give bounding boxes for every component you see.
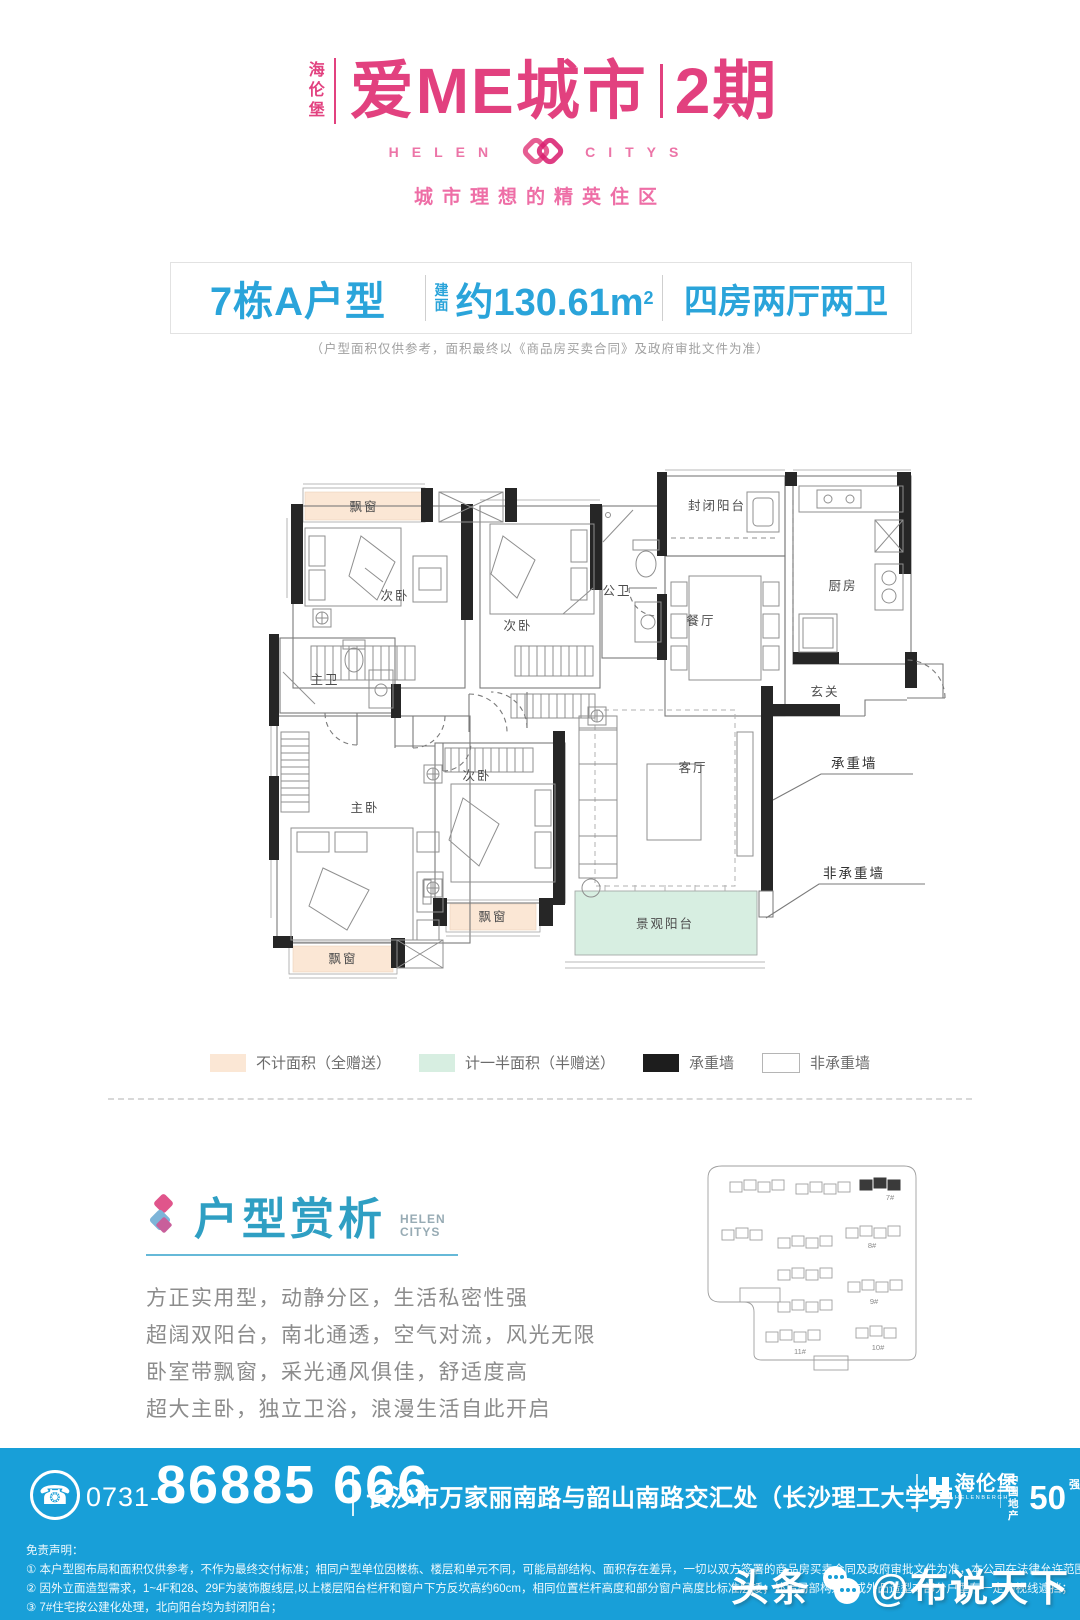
- footer-divider: [1000, 1478, 1001, 1508]
- legend-item-gift-area: 不计面积（全赠送）: [210, 1052, 391, 1073]
- site-label-9: 9#: [870, 1297, 879, 1306]
- label-bay-top: 飘窗: [349, 500, 378, 514]
- label-living: 客厅: [678, 760, 707, 775]
- rank-cn-1: 中国: [1008, 1474, 1026, 1498]
- label-bedroom2: 次卧: [380, 589, 409, 603]
- legend-label: 承重墙: [689, 1052, 734, 1073]
- address: 长沙市万家丽南路与韶山南路交汇处（长沙理工大学旁）: [366, 1478, 979, 1513]
- analysis-line: 卧室带飘窗，采光通风俱佳，舒适度高: [146, 1354, 706, 1391]
- legend-swatch-green: [419, 1054, 455, 1072]
- building-7-highlight: [860, 1178, 900, 1190]
- latin-row: HELEN CITYS: [0, 134, 1080, 170]
- phone-icon: ☎: [30, 1470, 80, 1520]
- legend-label: 非承重墙: [810, 1052, 870, 1073]
- watermark-bubbles-icon: [819, 1565, 863, 1605]
- site-boundary: [708, 1166, 916, 1360]
- analysis-body: 方正实用型，动静分区，生活私密性强 超阔双阳台，南北通透，空气对流，风光无限 卧…: [146, 1280, 706, 1428]
- latin-left: HELEN: [389, 144, 501, 160]
- analysis-section: 户型赏析 HELEN CITYS 方正实用型，动静分区，生活私密性强 超阔双阳台…: [146, 1192, 706, 1428]
- label-master-bedroom: 主卧: [350, 801, 379, 815]
- phase-divider-rule: [660, 64, 663, 118]
- living-furniture: [579, 710, 753, 897]
- phone-area-code: 0731-: [86, 1482, 160, 1513]
- flyer-page: 海伦堡 爱ME城市 2期 HELEN CITYS 城市理想的精英住区 7栋A户型…: [0, 0, 1080, 1620]
- legend-item-load-wall: 承重墙: [643, 1052, 734, 1073]
- area-prefix: 建面: [434, 283, 451, 313]
- floor-plan: 承重墙 非承重墙 飘窗 次卧 次卧 公卫 封闭阳台 餐厅 厨房 玄关 主卫 主卧…: [265, 448, 955, 1013]
- brand-vertical-label: 海伦堡: [302, 58, 336, 124]
- master-bedroom-furniture: [281, 732, 443, 940]
- area-note: （户型面积仅供参考，面积最终以《商品房买卖合同》及政府审批文件为准）: [0, 338, 1080, 357]
- project-phase: 2期: [675, 56, 779, 126]
- dining-furniture: [671, 576, 779, 680]
- site-label-10: 10#: [872, 1343, 885, 1352]
- footer-bar: ☎ 0731- 86885 666 长沙市万家丽南路与韶山南路交汇处（长沙理工大…: [0, 1448, 1080, 1620]
- legend-item-non-load-wall: 非承重墙: [762, 1052, 870, 1073]
- info-bar: 7栋A户型 建面 约130.61m 2 四房两厅两卫: [170, 262, 912, 334]
- brand-h-icon: [928, 1477, 950, 1499]
- footer-divider: [352, 1472, 354, 1516]
- bedroom2-furniture: [305, 528, 447, 680]
- header: 海伦堡 爱ME城市 2期 HELEN CITYS 城市理想的精英住区: [0, 56, 1080, 209]
- watermark-part2: @布说天下: [871, 1557, 1070, 1612]
- analysis-latin-2: CITYS: [400, 1226, 446, 1239]
- legend-label: 计一半面积（半赠送）: [465, 1052, 615, 1073]
- analysis-header: 户型赏析 HELEN CITYS: [146, 1192, 458, 1256]
- room-count: 四房两厅两卫: [663, 263, 909, 333]
- analysis-line: 超阔双阳台，南北通透，空气对流，风光无限: [146, 1317, 706, 1354]
- kitchen-fixtures: [799, 486, 903, 652]
- analysis-line: 超大主卧，独立卫浴，浪漫生活自此开启: [146, 1391, 706, 1428]
- label-master-bath: 主卫: [310, 673, 339, 687]
- ribbon-icon: [146, 1192, 180, 1244]
- analysis-latin: HELEN CITYS: [400, 1213, 446, 1244]
- label-closed-balcony: 封闭阳台: [688, 498, 746, 513]
- watermark-part1: 头条: [731, 1557, 811, 1612]
- site-label-11: 11#: [794, 1347, 807, 1356]
- label-bay-bottom: 飘窗: [328, 952, 357, 966]
- legend-label: 不计面积（全赠送）: [256, 1052, 391, 1073]
- legend-swatch-peach: [210, 1054, 246, 1072]
- rank-badge: 中国 地产 50 强: [1008, 1474, 1080, 1522]
- area-value: 约130.61m: [455, 271, 643, 326]
- non-load-wall-segment: [759, 891, 773, 917]
- floor-plan-drawing: 承重墙 非承重墙 飘窗 次卧 次卧 公卫 封闭阳台 餐厅 厨房 玄关 主卫 主卧…: [265, 448, 955, 1008]
- label-bedroom4: 次卧: [462, 769, 491, 783]
- label-bedroom3: 次卧: [503, 619, 532, 633]
- rank-cn-2: 地产: [1008, 1498, 1026, 1522]
- latin-right: CITYS: [585, 144, 691, 160]
- watermark: 头条 @布说天下: [731, 1557, 1070, 1612]
- label-kitchen: 厨房: [828, 578, 857, 593]
- dashed-divider: [108, 1098, 972, 1100]
- label-foyer: 玄关: [810, 684, 839, 699]
- legend-item-half-area: 计一半面积（半赠送）: [419, 1052, 615, 1073]
- site-label-8: 8#: [868, 1241, 877, 1250]
- rank-cn: 中国 地产: [1008, 1474, 1026, 1522]
- site-labels: 7# 8# 9# 10# 11#: [794, 1193, 895, 1356]
- footer-divider: [916, 1474, 918, 1512]
- public-bath-fixtures: [603, 510, 661, 642]
- footer-brand: 海伦堡 HELENBERGH: [928, 1474, 1018, 1502]
- bedroom3-furniture: [490, 524, 594, 676]
- site-buildings: [722, 1178, 902, 1370]
- label-view-balcony: 景观阳台: [636, 916, 694, 931]
- unit-name: 7栋A户型: [171, 263, 425, 333]
- legend-swatch-white: [762, 1053, 800, 1073]
- project-title: 爱ME城市: [350, 56, 648, 126]
- label-bay-mid: 飘窗: [478, 910, 507, 924]
- area-cell: 建面 约130.61m 2: [426, 263, 662, 333]
- label-dining: 餐厅: [686, 613, 715, 628]
- logo-row: 海伦堡 爱ME城市 2期: [0, 56, 1080, 126]
- legend-swatch-black: [643, 1054, 679, 1072]
- wall-annotations: 承重墙 非承重墙: [766, 756, 925, 918]
- rank-number: 50: [1029, 1481, 1066, 1515]
- tagline: 城市理想的精英住区: [0, 182, 1080, 209]
- rank-suffix: 强: [1069, 1476, 1080, 1492]
- load-wall-annotation: 承重墙: [831, 756, 878, 771]
- site-label-7: 7#: [886, 1193, 895, 1202]
- label-public-bath: 公卫: [602, 584, 631, 598]
- analysis-line: 方正实用型，动静分区，生活私密性强: [146, 1280, 706, 1317]
- analysis-title: 户型赏析: [194, 1196, 386, 1244]
- knot-icon: [517, 134, 569, 170]
- hall-cabinet: [511, 694, 595, 718]
- area-superscript: 2: [644, 288, 654, 309]
- site-plan-map: 7# 8# 9# 10# 11#: [694, 1142, 952, 1382]
- site-plan: 7# 8# 9# 10# 11#: [694, 1142, 952, 1387]
- non-load-wall-annotation: 非承重墙: [823, 866, 885, 881]
- legend: 不计面积（全赠送） 计一半面积（半赠送） 承重墙 非承重墙: [0, 1052, 1080, 1073]
